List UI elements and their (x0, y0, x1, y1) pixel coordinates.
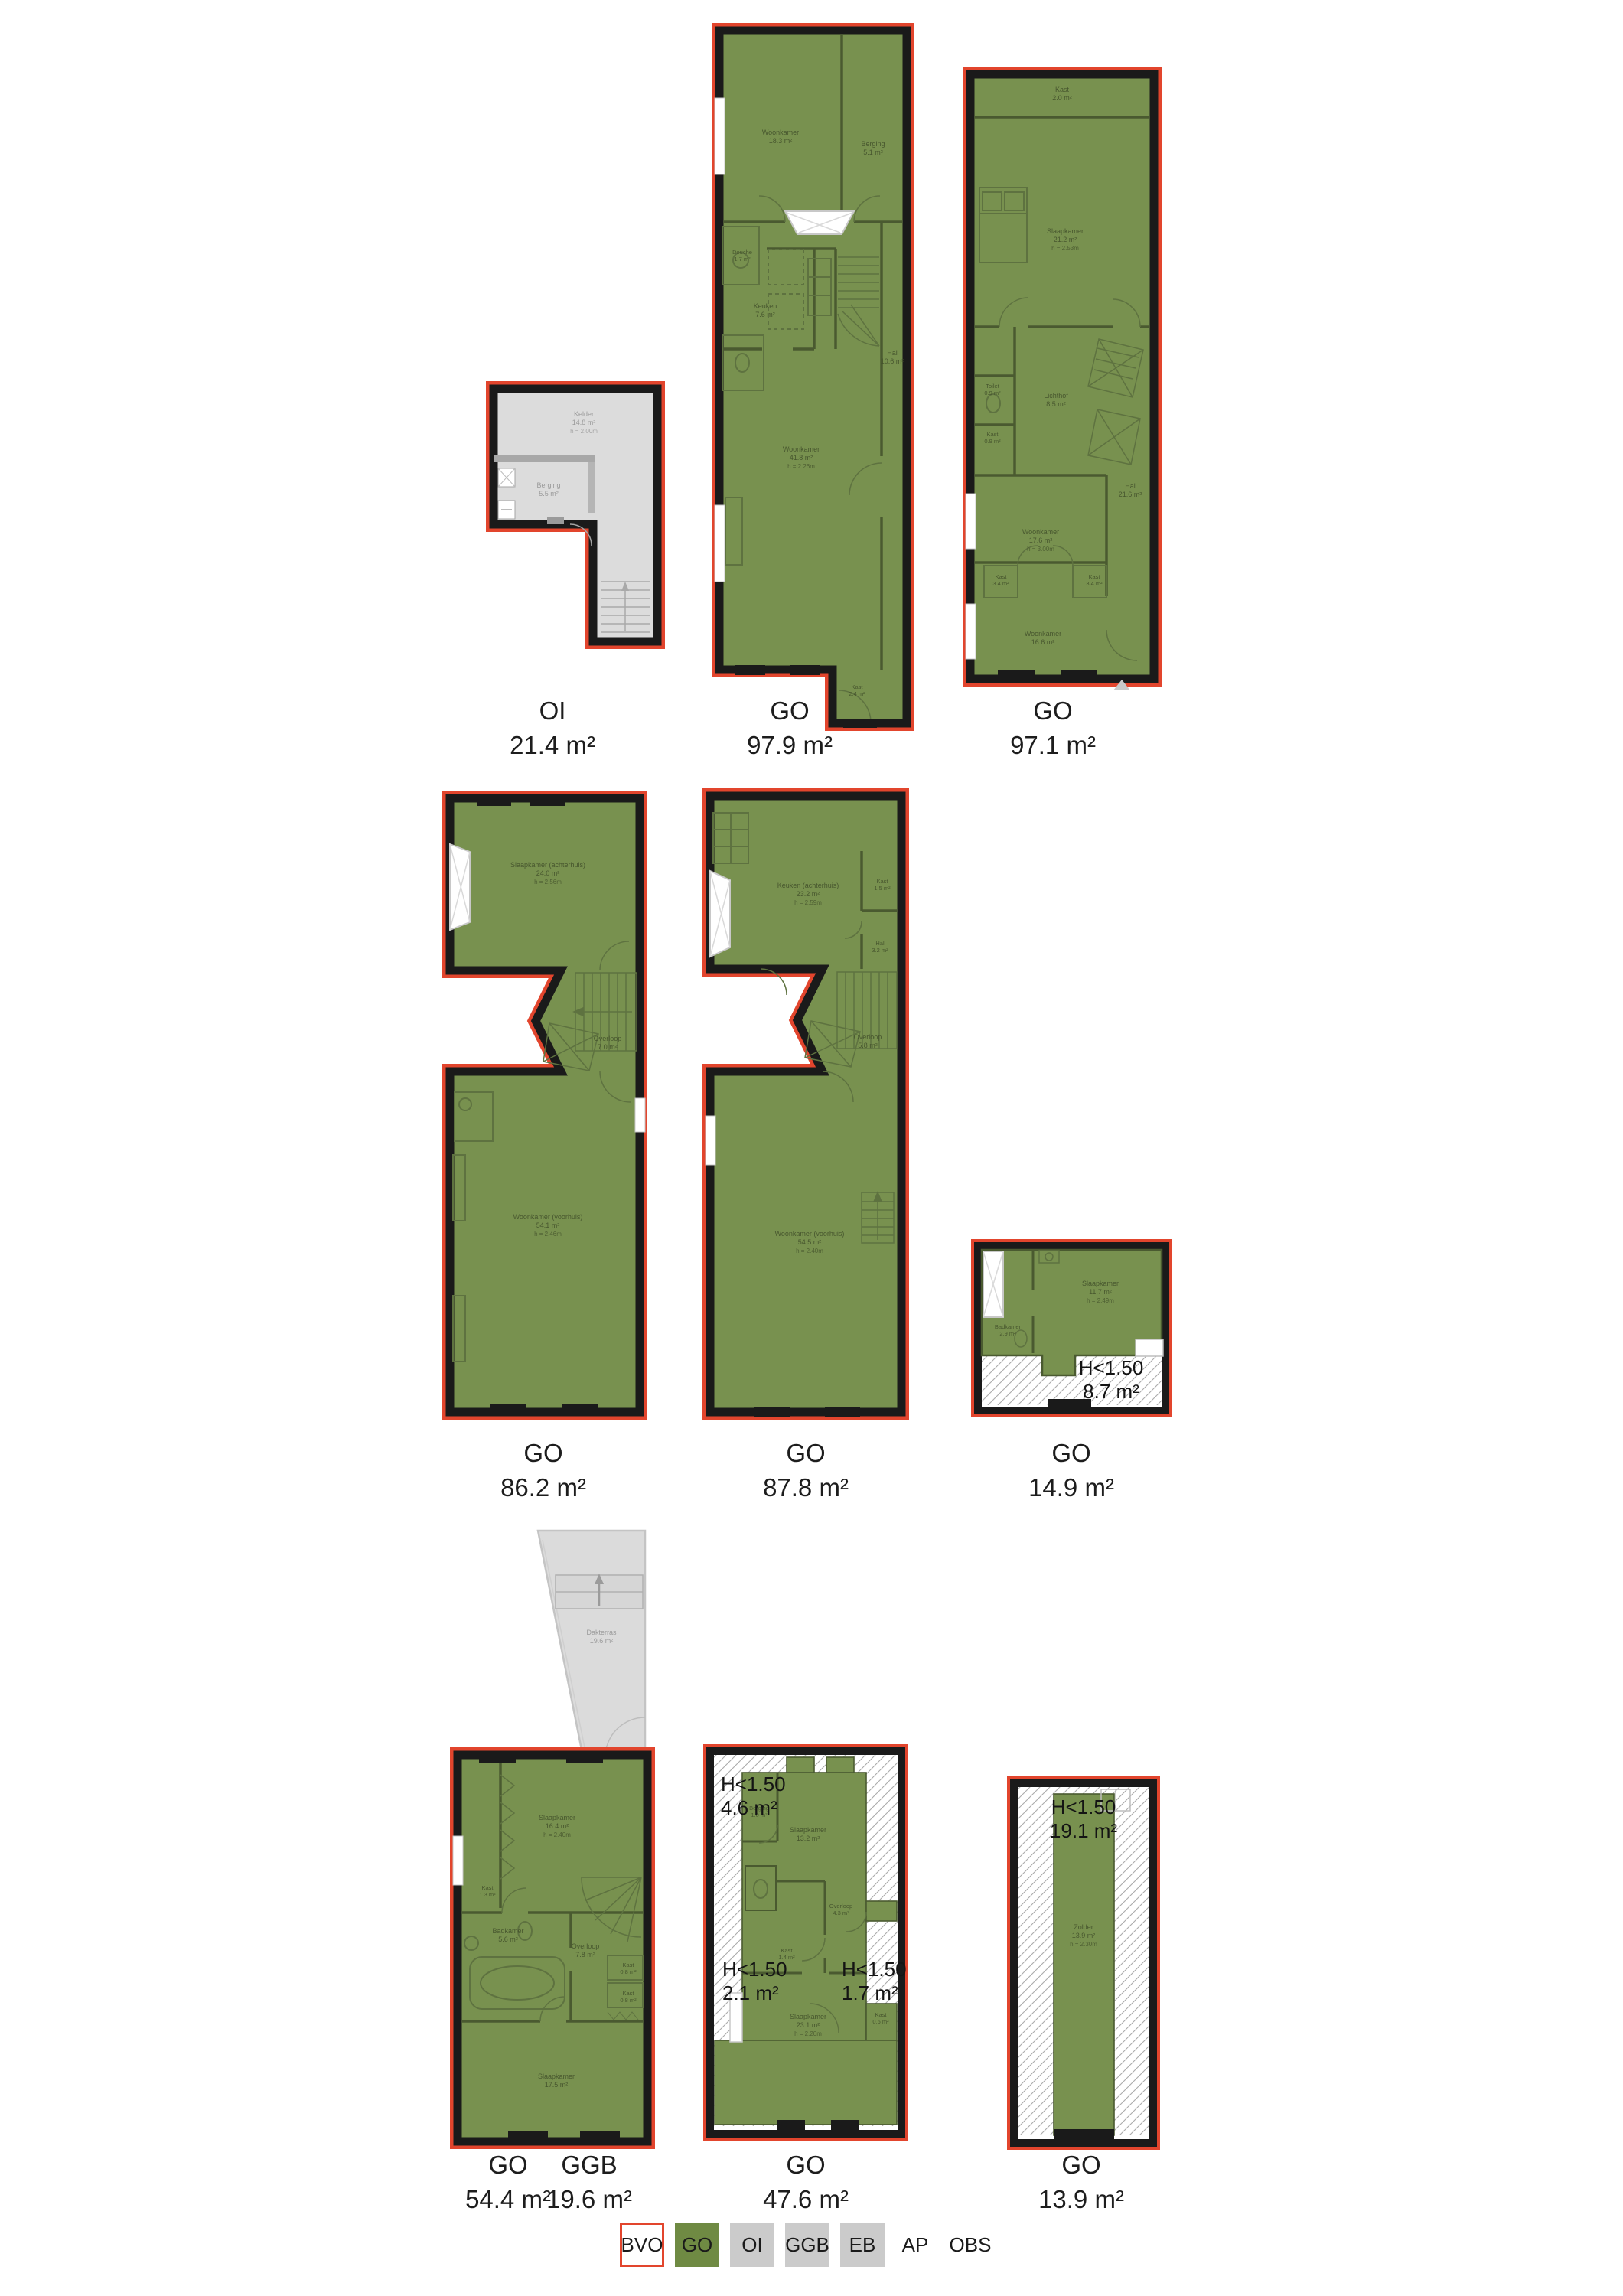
room-label: Slaapkamer13.2 m² (790, 1826, 826, 1843)
room-label: Woonkamer (voorhuis)54.5 m²h = 2.40m (775, 1230, 845, 1255)
room-label: Woonkamer18.3 m² (762, 129, 799, 145)
floorplan-go-97-1 (970, 74, 1154, 679)
room-label: Hal21.6 m² (1119, 482, 1142, 499)
plan-label-go-47-6: GO47.6 m² (763, 2148, 849, 2216)
plan-label-go-54-4: GO54.4 m² (465, 2148, 551, 2216)
roof-terrace (494, 1529, 647, 1759)
room-label: Woonkamer17.6 m²h = 3.00m (1022, 528, 1059, 553)
room-label: Slaapkamer (achterhuis)24.0 m²h = 2.56m (510, 861, 585, 886)
room-label: Kast2.4 m² (849, 683, 865, 697)
room-label: Woonkamer41.8 m²h = 2.26m (783, 445, 820, 471)
room-label: Kast0.8 m² (620, 1990, 636, 2004)
plan-label-go-13-9: GO13.9 m² (1038, 2148, 1124, 2216)
room-label: Overloop4.3 m² (829, 1903, 852, 1916)
room-label: Keuken7.6 m² (754, 302, 777, 319)
plan-label-ggb-19-6: GGB19.6 m² (546, 2148, 632, 2216)
floorplan-go-86-2 (450, 798, 640, 1412)
legend-item-ggb: GGB (785, 2223, 829, 2267)
room-label: Badkamer2.9 m² (995, 1323, 1021, 1337)
plan-label-oi: OI21.4 m² (510, 693, 595, 762)
room-label: Hal10.6 m² (881, 349, 904, 366)
room-label: Woonkamer16.6 m² (1025, 630, 1061, 647)
room-label: Kast2.0 m² (1052, 86, 1072, 103)
room-label: Zolder13.9 m²h = 2.30m (1070, 1923, 1097, 1949)
room-label: Dakterras19.6 m² (586, 1629, 616, 1645)
height-restriction-label: H<1.504.6 m² (721, 1773, 786, 1820)
legend-item-go: GO (675, 2223, 719, 2267)
plan-label-go-86-2: GO86.2 m² (500, 1436, 586, 1505)
floorplan-go-97-9 (719, 31, 907, 723)
sheet: Kelder14.8 m²h = 2.00m Berging5.5 m² Woo… (0, 0, 1623, 2296)
room-label: Slaapkamer21.2 m²h = 2.53m (1047, 227, 1084, 253)
room-label: Kast0.8 m² (620, 1962, 636, 1975)
room-label: Berging5.5 m² (536, 481, 560, 498)
room-label: Kast1.3 m² (479, 1884, 495, 1898)
room-label: Berging5.1 m² (861, 140, 885, 157)
height-restriction-label: H<1.508.7 m² (1079, 1356, 1144, 1404)
height-restriction-label: H<1.502.1 m² (722, 1958, 787, 2005)
room-label: Woonkamer (voorhuis)54.1 m²h = 2.46m (513, 1213, 583, 1238)
room-label: Kast1.5 m² (874, 878, 890, 892)
room-label: Kast0.9 m² (984, 431, 1000, 445)
plan-label-go-87-8: GO87.8 m² (763, 1436, 849, 1505)
room-label: Badkamer5.6 m² (492, 1927, 523, 1944)
room-label: Toilet0.9 m² (984, 383, 1000, 396)
room-label: Slaapkamer23.1 m²h = 2.20m (790, 2013, 826, 2038)
legend-item-obs: OBS (943, 2223, 998, 2267)
plan-label-go-97-9: GO97.9 m² (747, 693, 833, 762)
room-label: Overloop7.0 m² (594, 1035, 622, 1052)
plan-label-go-97-1: GO97.1 m² (1010, 693, 1096, 762)
legend-item-bvo: BVO (620, 2223, 664, 2267)
room-label: Slaapkamer11.7 m²h = 2.49m (1082, 1280, 1119, 1305)
height-restriction-label: H<1.5019.1 m² (1050, 1795, 1117, 1843)
room-label: Kast3.4 m² (1086, 573, 1102, 587)
legend-item-oi: OI (730, 2223, 774, 2267)
plan-label-go-14-9: GO14.9 m² (1028, 1436, 1114, 1505)
room-label: Slaapkamer16.4 m²h = 2.40m (539, 1814, 575, 1839)
room-label: Douche1.7 m² (732, 249, 752, 263)
height-restriction-label: H<1.501.7 m² (842, 1958, 907, 2005)
room-label: Kelder14.8 m²h = 2.00m (570, 410, 598, 435)
room-label: Kast3.4 m² (992, 573, 1009, 587)
legend-item-eb: EB (840, 2223, 885, 2267)
room-label: Hal3.2 m² (872, 940, 888, 954)
room-label: Keuken (achterhuis)23.2 m²h = 2.59m (777, 882, 839, 907)
room-label: Overloop7.8 m² (572, 1942, 600, 1959)
room-label: Kast0.6 m² (872, 2011, 888, 2025)
legend-item-ap: AP (888, 2223, 943, 2267)
room-label: Slaapkamer17.5 m² (538, 2073, 575, 2089)
room-label: Lichthof8.5 m² (1044, 392, 1068, 409)
north-marker-icon (1113, 680, 1130, 690)
room-label: Overloop5.8 m² (854, 1033, 882, 1050)
